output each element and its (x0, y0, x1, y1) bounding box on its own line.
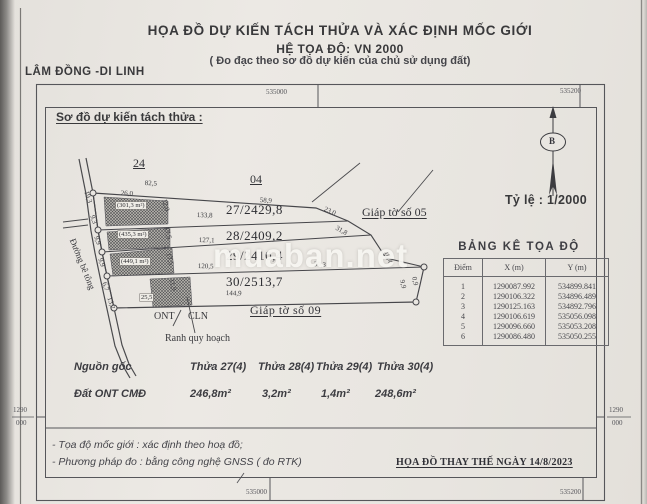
sketch-heading: Sơ đồ dự kiến tách thửa : (56, 110, 203, 124)
grid-label-left-lower: 000 (16, 419, 27, 427)
province-district-label: LÂM ĐỒNG -DI LINH (25, 66, 145, 78)
cell-y: 535050.255 (546, 331, 609, 346)
dim-label: 9,9 (398, 279, 408, 289)
cell-point: 2 (444, 291, 483, 301)
cell-point: 6 (444, 331, 483, 346)
grid-label-right-upper: 1290 (609, 406, 623, 414)
dim-label: 82,5 (145, 179, 158, 188)
coordinate-system-subtitle: HỆ TỌA ĐỘ: VN 2000 (120, 42, 560, 56)
table-row: 4 1290106.619 535056.098 (444, 311, 609, 321)
footer-note-method: - Phương pháp đo : bằng công nghệ GNSS (… (52, 456, 302, 468)
cell-y: 534896.489 (546, 291, 609, 301)
grid-label-top-right: 535200 (560, 87, 581, 95)
dim-label: 26,0 (121, 189, 134, 198)
area-29: 1,4m² (321, 388, 350, 400)
parcel-30-label: 30/2513,7 (226, 274, 283, 290)
hatch-area-label: (449,1 m²) (120, 258, 150, 265)
adjacent-sheet-05-label: Giáp tờ số 05 (362, 205, 427, 220)
cell-x: 1290087.992 (483, 277, 546, 292)
origin-col-27: Thửa 27(4) (190, 361, 246, 373)
landuse-ont-label: ONT (154, 311, 175, 322)
north-arrow-icon: B (549, 136, 555, 146)
cell-y: 534899.841 (546, 277, 609, 292)
area-27: 246,8m² (190, 388, 231, 400)
grid-label-right-lower: 000 (612, 419, 623, 427)
landuse-cln-label: CLN (188, 311, 208, 322)
origin-col-28: Thửa 28(4) (258, 361, 314, 373)
cell-y: 534892.796 (546, 301, 609, 311)
coordinate-table: Điểm X (m) Y (m) 1 1290087.992 534899.84… (443, 258, 609, 346)
cell-x: 1290096.660 (483, 321, 546, 331)
cell-point: 3 (444, 301, 483, 311)
table-row: 1 1290087.992 534899.841 (444, 277, 609, 292)
dim-label: 120,5 (198, 262, 214, 271)
dim-label: 58,9 (259, 196, 272, 205)
area-28: 3,2m² (262, 388, 291, 400)
cell-x: 1290125.163 (483, 301, 546, 311)
scanned-document-page: HỌA ĐỒ DỰ KIẾN TÁCH THỬA VÀ XÁC ĐỊNH MỐC… (0, 0, 647, 504)
document-title: HỌA ĐỒ DỰ KIẾN TÁCH THỬA VÀ XÁC ĐỊNH MỐC… (120, 23, 560, 38)
cell-x: 1290106.322 (483, 291, 546, 301)
cell-y: 535056.098 (546, 311, 609, 321)
origin-col-29: Thửa 29(4) (316, 361, 372, 373)
map-sheet-04-label: 04 (250, 172, 262, 187)
table-row: 3 1290125.163 534892.796 (444, 301, 609, 311)
replacement-date-label: HỌA ĐỒ THAY THẾ NGÀY 14/8/2023 (396, 457, 573, 468)
cell-point: 5 (444, 321, 483, 331)
coordinate-table-title: BẢNG KÊ TỌA ĐỘ (443, 241, 595, 253)
hatch-area-label: 25,5 (140, 294, 153, 301)
footer-note-coordinates: - Tọa độ mốc giới : xác định theo hoạ đồ… (52, 439, 243, 451)
land-type-label: Đất ONT CMĐ (74, 388, 146, 400)
cell-point: 4 (444, 311, 483, 321)
hatch-area-label: (435,3 m²) (118, 231, 148, 238)
hatch-area-label: (301,3 m²) (116, 202, 146, 209)
table-row: 5 1290096.660 535053.208 (444, 321, 609, 331)
dim-label: 144,9 (226, 289, 242, 298)
cell-y: 535053.208 (546, 321, 609, 331)
cell-x: 1290086.480 (483, 331, 546, 346)
parcel-27-label: 27/2429,8 (226, 202, 283, 218)
dim-label: 0,9 (410, 276, 420, 286)
grid-label-bottom-right: 535200 (560, 488, 581, 496)
planning-boundary-label: Ranh quy hoạch (165, 333, 230, 344)
measurement-note: ( Đo đạc theo sơ đồ dự kiến của chủ sử d… (120, 55, 560, 67)
col-header-y: Y (m) (546, 259, 609, 277)
table-row: 6 1290086.480 535050.255 (444, 331, 609, 346)
grid-label-top-left: 535000 (266, 88, 287, 96)
origin-label: Nguồn gốc (74, 361, 131, 373)
grid-label-bottom-left: 535000 (246, 488, 267, 496)
area-30: 248,6m² (375, 388, 416, 400)
grid-label-left-upper: 1290 (13, 406, 27, 414)
table-row: 2 1290106.322 534896.489 (444, 291, 609, 301)
cell-x: 1290106.619 (483, 311, 546, 321)
cell-point: 1 (444, 277, 483, 292)
col-header-point: Điểm (444, 259, 483, 277)
col-header-x: X (m) (483, 259, 546, 277)
origin-col-30: Thửa 30(4) (377, 361, 433, 373)
map-sheet-24-label: 24 (133, 156, 145, 171)
watermark: muaban.net (213, 237, 408, 275)
adjacent-sheet-09-label: Giáp tờ số 09 (250, 303, 321, 318)
scale-label: Tỷ lệ : 1/2000 (505, 193, 587, 207)
dim-label: 133,8 (197, 211, 213, 220)
